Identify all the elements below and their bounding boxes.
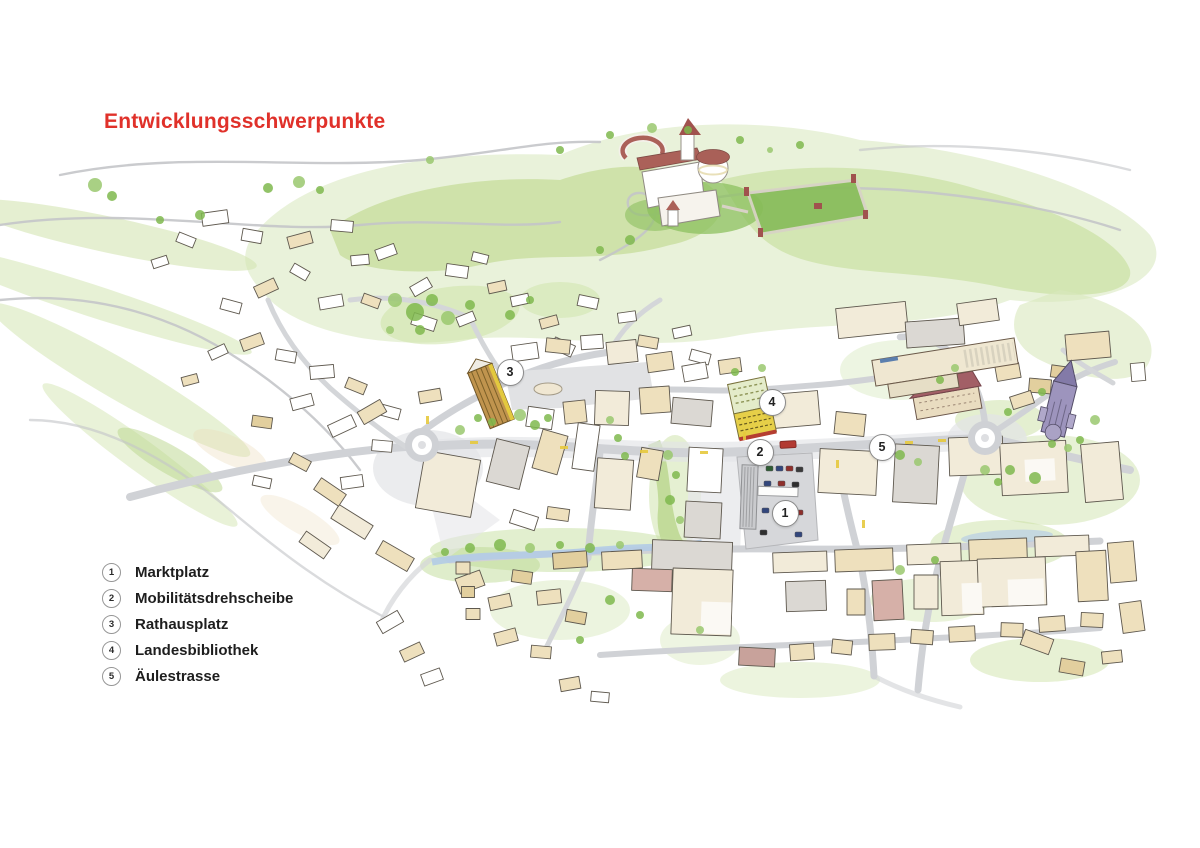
bus: [780, 441, 796, 449]
legend-item: 1Marktplatz: [102, 559, 293, 585]
map-marker-1: 1: [772, 500, 799, 527]
legend-label: Landesbibliothek: [135, 642, 258, 659]
legend-item: 2Mobilitätsdrehscheibe: [102, 585, 293, 611]
legend-item: 4Landesbibliothek: [102, 637, 293, 663]
page-title: Entwicklungsschwerpunkte: [104, 110, 385, 134]
map-marker-5: 5: [869, 434, 896, 461]
legend-badge: 2: [102, 589, 121, 608]
roundabout-east: [972, 425, 999, 452]
legend-label: Marktplatz: [135, 564, 209, 581]
map-marker-4: 4: [759, 389, 786, 416]
legend-label: Rathausplatz: [135, 616, 228, 633]
legend-badge: 4: [102, 641, 121, 660]
legend-badge: 1: [102, 563, 121, 582]
map-marker-3: 3: [497, 359, 524, 386]
legend-label: Äulestrasse: [135, 668, 220, 685]
legend: 1Marktplatz2Mobilitätsdrehscheibe3Rathau…: [102, 559, 293, 689]
roundabout-west: [409, 432, 436, 459]
map-marker-2: 2: [747, 439, 774, 466]
legend-item: 5Äulestrasse: [102, 663, 293, 689]
legend-badge: 3: [102, 615, 121, 634]
legend-label: Mobilitätsdrehscheibe: [135, 590, 293, 607]
map-poster: Entwicklungsschwerpunkte 12345 1Marktpla…: [0, 0, 1200, 848]
legend-badge: 5: [102, 667, 121, 686]
legend-item: 3Rathausplatz: [102, 611, 293, 637]
